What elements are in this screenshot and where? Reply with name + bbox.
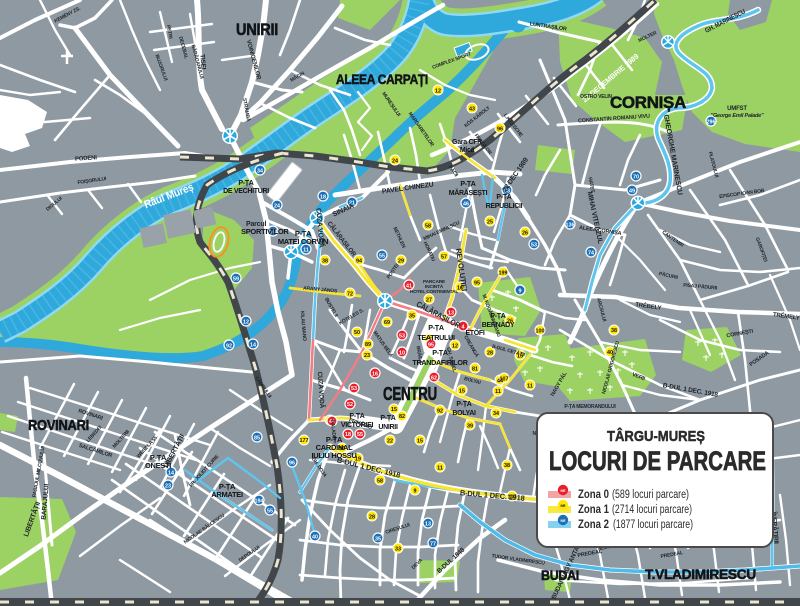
svg-text:ROVINARI: ROVINARI <box>28 418 89 434</box>
svg-text:UMFST: UMFST <box>727 106 747 112</box>
svg-text:P-ȚA: P-ȚA <box>380 415 395 422</box>
svg-text:38: 38 <box>504 463 510 469</box>
svg-text:11: 11 <box>437 465 443 471</box>
svg-text:107: 107 <box>500 376 509 382</box>
svg-text:55: 55 <box>267 508 273 514</box>
svg-text:53: 53 <box>399 333 405 339</box>
svg-text:70: 70 <box>633 174 639 180</box>
svg-text:12: 12 <box>452 343 458 349</box>
svg-text:12: 12 <box>243 319 249 325</box>
svg-text:22: 22 <box>387 438 393 444</box>
svg-text:15: 15 <box>459 388 465 394</box>
svg-text:UNIRII: UNIRII <box>236 21 278 39</box>
svg-text:CENTRU: CENTRU <box>383 383 437 404</box>
svg-text:14: 14 <box>250 342 256 348</box>
svg-text:35: 35 <box>375 536 381 542</box>
svg-text:UNIRII: UNIRII <box>378 424 398 431</box>
svg-text:39: 39 <box>467 423 473 429</box>
svg-text:35: 35 <box>409 313 415 319</box>
svg-text:HOTEL CONTINENTAL: HOTEL CONTINENTAL <box>410 289 458 295</box>
svg-text:Mică: Mică <box>460 147 475 154</box>
svg-text:92: 92 <box>226 343 232 349</box>
svg-text:11: 11 <box>495 389 501 395</box>
svg-text:T.VLADIMIRESCU: T.VLADIMIRESCU <box>645 566 756 582</box>
svg-text:18: 18 <box>345 432 351 438</box>
svg-text:85: 85 <box>254 435 260 441</box>
svg-text:49: 49 <box>629 188 635 194</box>
svg-text:55: 55 <box>357 432 363 438</box>
svg-text:77: 77 <box>430 541 436 547</box>
svg-text:34: 34 <box>257 168 263 174</box>
svg-text:P-ȚA: P-ȚA <box>460 181 475 188</box>
svg-text:MĂRĂȘEȘTI: MĂRĂȘEȘTI <box>449 188 488 197</box>
svg-text:96: 96 <box>497 126 503 132</box>
svg-text:11: 11 <box>303 247 309 253</box>
svg-text:34: 34 <box>493 411 499 417</box>
svg-text:11: 11 <box>527 383 533 389</box>
svg-text:Zona 1: Zona 1 <box>578 502 609 516</box>
svg-text:96: 96 <box>289 460 295 466</box>
svg-text:16: 16 <box>372 371 378 377</box>
svg-text:23: 23 <box>165 483 171 489</box>
svg-text:50: 50 <box>354 330 360 336</box>
svg-text:82: 82 <box>399 414 405 420</box>
svg-text:52: 52 <box>347 402 353 408</box>
svg-text:(2714 locuri parcare): (2714 locuri parcare) <box>612 504 692 516</box>
svg-text:(1877 locuri parcare): (1877 locuri parcare) <box>613 519 693 531</box>
svg-text:15: 15 <box>417 438 423 444</box>
svg-text:57: 57 <box>441 254 447 260</box>
svg-text:199: 199 <box>499 270 508 276</box>
svg-text:23: 23 <box>364 353 370 359</box>
svg-text:92: 92 <box>437 408 443 414</box>
svg-text:SPORTIVILOR: SPORTIVILOR <box>241 227 289 236</box>
svg-text:9: 9 <box>519 288 522 294</box>
svg-text:28: 28 <box>369 514 375 520</box>
svg-text:59: 59 <box>233 276 239 282</box>
svg-text:OSTRO VELIN: OSTRO VELIN <box>580 94 612 100</box>
svg-text:Zona 2: Zona 2 <box>578 517 609 531</box>
svg-text:74: 74 <box>588 250 594 256</box>
svg-text:55: 55 <box>379 253 385 259</box>
svg-text:194: 194 <box>255 498 264 504</box>
svg-text:26: 26 <box>522 230 528 236</box>
svg-text:38: 38 <box>611 328 617 334</box>
svg-text:NR: NR <box>561 489 566 493</box>
svg-text:38: 38 <box>322 258 328 264</box>
svg-text:12: 12 <box>435 88 441 94</box>
svg-text:69: 69 <box>384 320 390 326</box>
svg-text:28: 28 <box>487 350 493 356</box>
svg-text:P-ȚA: P-ȚA <box>428 323 444 332</box>
svg-text:53: 53 <box>351 386 357 392</box>
svg-text:Zona 0: Zona 0 <box>578 487 609 501</box>
svg-text:33: 33 <box>395 546 401 552</box>
svg-text:NR: NR <box>561 504 566 508</box>
svg-text:18: 18 <box>320 194 326 200</box>
svg-text:P-ȚA: P-ȚA <box>238 180 253 187</box>
svg-text:136: 136 <box>566 222 575 228</box>
svg-text:REPUBLICII: REPUBLICII <box>486 203 523 210</box>
svg-text:P-ȚA MEMORANDULUI: P-ȚA MEMORANDULUI <box>564 404 616 410</box>
svg-text:46: 46 <box>463 201 469 207</box>
svg-text:296: 296 <box>707 119 716 125</box>
svg-text:72: 72 <box>347 291 353 297</box>
svg-text:INCINTĂ: INCINTĂ <box>425 283 444 290</box>
svg-text:4: 4 <box>462 324 465 330</box>
svg-text:43: 43 <box>469 106 475 112</box>
svg-text:94: 94 <box>356 258 362 264</box>
svg-text:81: 81 <box>472 366 478 372</box>
svg-text:10: 10 <box>399 350 405 356</box>
svg-text:CORNIȘA: CORNIȘA <box>610 94 686 112</box>
svg-text:100: 100 <box>536 328 545 334</box>
svg-text:41: 41 <box>406 283 412 289</box>
svg-text:ARMATEI: ARMATEI <box>211 490 243 499</box>
svg-text:DE VECHITURI: DE VECHITURI <box>223 188 269 195</box>
svg-text:ALEEA CARPAȚI: ALEEA CARPAȚI <box>336 71 428 87</box>
svg-text:24: 24 <box>392 158 398 164</box>
svg-text:40: 40 <box>312 534 318 540</box>
svg-text:(589 locuri parcare): (589 locuri parcare) <box>612 489 689 501</box>
svg-text:14: 14 <box>168 470 174 476</box>
svg-text:89: 89 <box>365 342 371 348</box>
svg-text:95: 95 <box>474 280 480 286</box>
svg-text:25: 25 <box>487 219 493 225</box>
svg-text:177: 177 <box>300 438 309 444</box>
svg-text:BOLYAI: BOLYAI <box>452 410 476 417</box>
svg-text:53: 53 <box>531 242 537 248</box>
svg-text:LOCURI DE PARCARE: LOCURI DE PARCARE <box>549 446 766 476</box>
svg-text:62: 62 <box>431 375 437 381</box>
svg-text:NR: NR <box>561 519 566 523</box>
svg-text:58: 58 <box>377 478 383 484</box>
svg-text:24: 24 <box>274 203 280 209</box>
svg-text:9: 9 <box>414 488 417 494</box>
svg-text:29: 29 <box>398 258 404 264</box>
svg-text:58: 58 <box>425 223 431 229</box>
svg-text:MATEI CORVIN: MATEI CORVIN <box>278 237 328 246</box>
svg-text:15: 15 <box>391 407 397 413</box>
svg-text:P-ȚA: P-ȚA <box>496 194 511 201</box>
svg-text:P-ȚA: P-ȚA <box>456 401 471 408</box>
svg-text:"George Emil Palade": "George Emil Palade" <box>711 113 764 119</box>
svg-text:TEATRULUI: TEATRULUI <box>417 333 455 342</box>
svg-text:13: 13 <box>425 521 431 527</box>
svg-text:27: 27 <box>426 297 432 303</box>
svg-text:TÂRGU-MUREȘ: TÂRGU-MUREȘ <box>607 427 705 445</box>
